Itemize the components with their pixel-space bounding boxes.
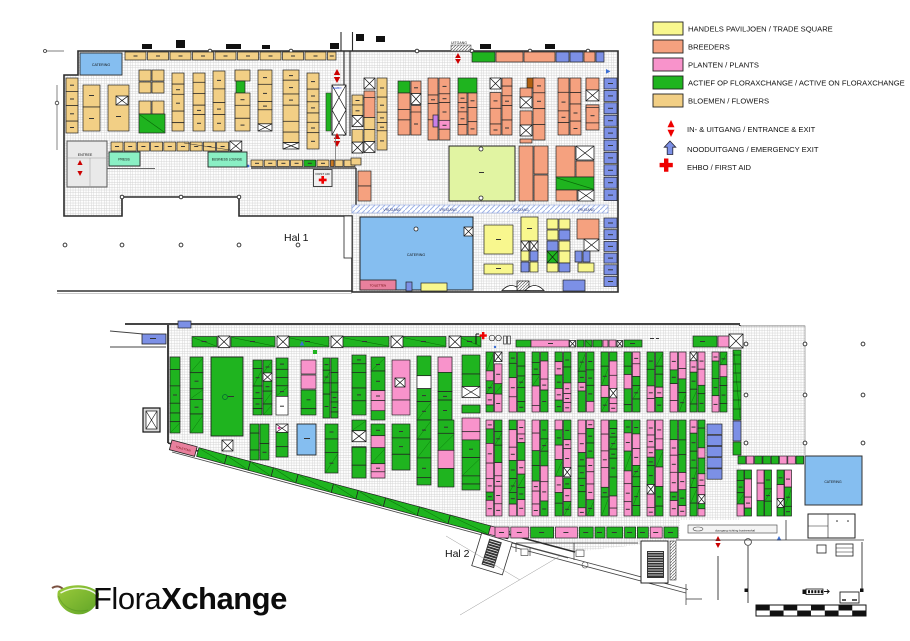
svg-text:IN- & UITGANG / ENTRANCE & EXI: IN- & UITGANG / ENTRANCE & EXIT <box>687 125 816 134</box>
svg-text:EHBO: EHBO <box>333 86 342 90</box>
svg-text:ENTREE: ENTREE <box>78 153 93 157</box>
svg-text:VRIJGANG: VRIJGANG <box>577 208 595 212</box>
svg-text:FIRST AID: FIRST AID <box>316 172 331 176</box>
svg-text:CATERING: CATERING <box>407 253 426 257</box>
svg-text:VRIJGANG: VRIJGANG <box>439 208 457 212</box>
svg-text:doorgang richting businesshal: doorgang richting businesshal <box>715 529 755 533</box>
svg-text:VRIJGANG: VRIJGANG <box>511 208 529 212</box>
svg-text:PLANTEN / PLANTS: PLANTEN / PLANTS <box>688 61 759 70</box>
svg-text:HANDELS PAVILJOEN / TRADE SQUA: HANDELS PAVILJOEN / TRADE SQUARE <box>688 25 833 34</box>
svg-text:PRESS: PRESS <box>118 158 130 162</box>
svg-text:VRIJGANG: VRIJGANG <box>383 208 401 212</box>
svg-text:NOODUITGANG / EMERGENCY EXIT: NOODUITGANG / EMERGENCY EXIT <box>687 145 819 154</box>
svg-text:ACTIEF OP FLORAXCHANGE / ACTIV: ACTIEF OP FLORAXCHANGE / ACTIVE ON FLORA… <box>688 79 905 88</box>
svg-text:EHBO / FIRST AID: EHBO / FIRST AID <box>687 163 752 172</box>
svg-text:UITGANG: UITGANG <box>451 41 467 45</box>
svg-text:CATERING: CATERING <box>92 63 111 67</box>
svg-text:TOILETTEN: TOILETTEN <box>370 284 386 288</box>
svg-text:CATERING: CATERING <box>824 480 842 484</box>
svg-text:FloraXchange: FloraXchange <box>93 581 287 616</box>
svg-text:Hal 2: Hal 2 <box>445 548 470 560</box>
svg-text:BLOEMEN / FLOWERS: BLOEMEN / FLOWERS <box>688 97 769 106</box>
svg-text:Hal 1: Hal 1 <box>284 232 309 244</box>
svg-text:BUSINESS LOUNGE: BUSINESS LOUNGE <box>212 158 242 162</box>
svg-text:BREEDERS: BREEDERS <box>688 43 730 52</box>
